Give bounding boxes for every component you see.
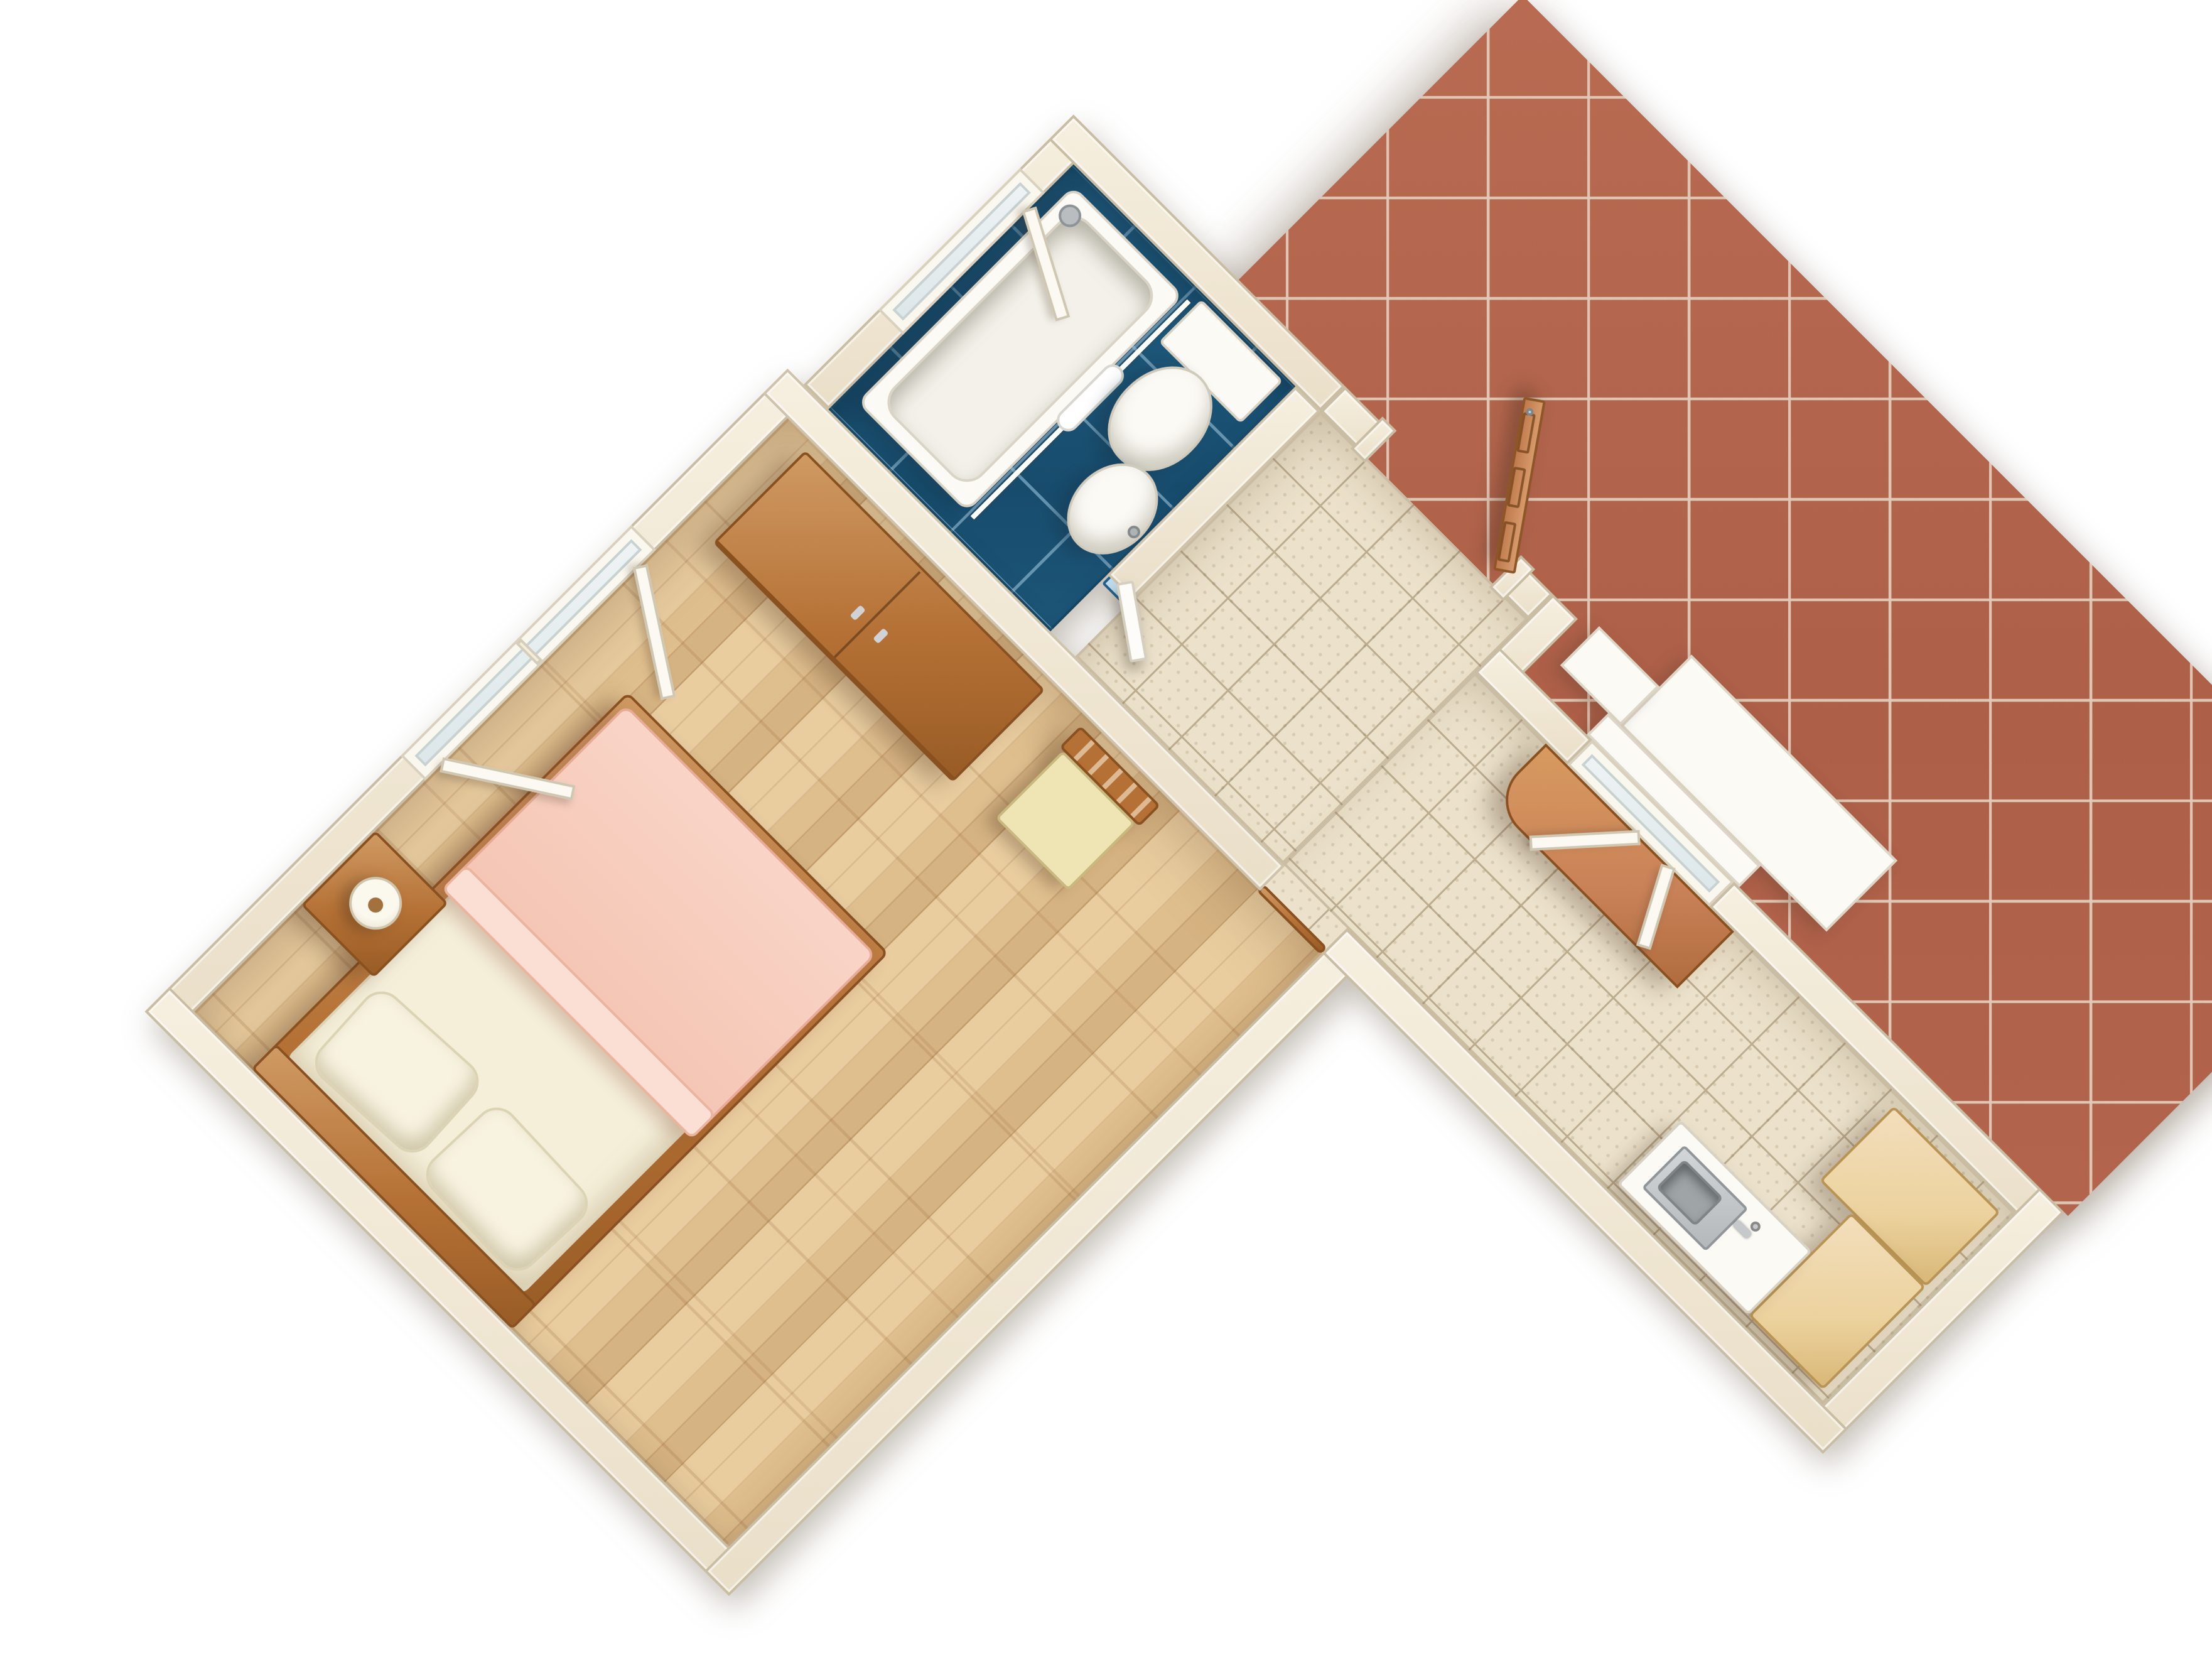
- floorplan-stage: [0, 0, 2212, 1675]
- door-panel: [1516, 412, 1536, 454]
- door-panel: [1507, 467, 1526, 509]
- door-panel: [1497, 521, 1517, 563]
